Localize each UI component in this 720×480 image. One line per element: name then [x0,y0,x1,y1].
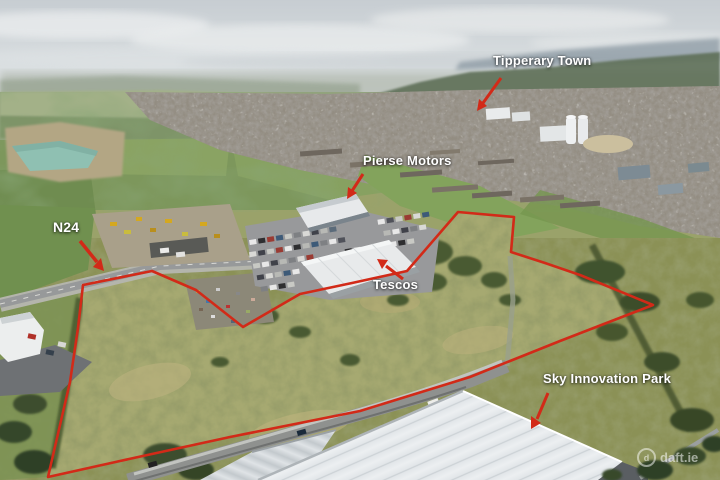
label-pierse-motors: Pierse Motors [363,154,452,168]
daft-watermark-text: daft.ie [660,450,698,465]
daft-logo-icon: d [637,448,656,467]
aerial-site-photo: Tipperary Town Pierse Motors N24 Tescos … [0,0,720,480]
quarry-lake [5,122,125,182]
label-tipperary-town: Tipperary Town [493,54,591,68]
label-sky-innovation-park: Sky Innovation Park [543,372,671,386]
aerial-scene [0,0,720,480]
label-tescos: Tescos [373,278,418,292]
label-n24: N24 [53,220,79,235]
daft-watermark: d daft.ie [637,448,698,467]
